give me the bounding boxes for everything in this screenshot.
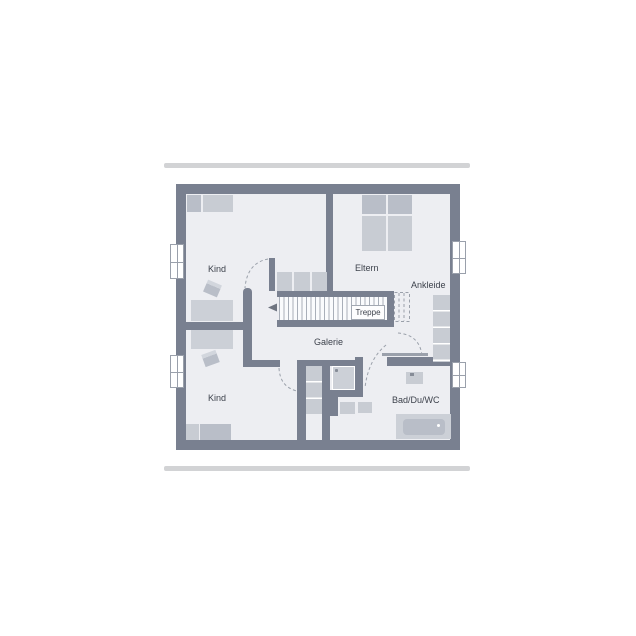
room-label-treppe: Treppe [355,308,380,318]
chair [203,280,222,298]
stair-direction-arrow-icon [268,304,277,312]
bed [388,216,412,251]
sink [406,372,423,384]
chair [201,350,220,367]
room-label-bad: Bad/Du/WC [392,395,440,405]
bed-pillow [187,195,201,212]
wall [277,320,394,327]
wardrobe [306,366,322,414]
wall [326,194,333,291]
sliding-door [382,353,428,356]
desk [191,300,233,321]
door-leaf [269,258,275,291]
stairs-label-box: Treppe [351,305,385,320]
bathtub-basin [403,419,445,435]
bed-pillow [186,424,199,440]
shelf [294,272,310,291]
bed-pillow [388,195,412,214]
wall [297,360,306,440]
top-divider-bar [164,163,470,168]
room-label-eltern: Eltern [355,263,379,273]
room-label-kind-top: Kind [208,264,226,274]
bed [362,216,386,251]
shower [332,366,355,390]
window [170,244,184,279]
stairs-dashed-extension [395,293,410,322]
desk [191,330,233,349]
floor-plan: Treppe Kind Eltern Ankleide Galerie Kind… [176,184,460,450]
room-label-galerie: Galerie [314,337,343,347]
shelf [312,272,327,291]
washer [340,402,355,414]
wall [387,291,394,327]
wall [330,390,363,397]
wall [186,322,243,330]
shelf [277,272,292,291]
window [452,241,466,274]
door-swing-arc [279,368,297,391]
wall [243,288,252,362]
bed [200,424,231,440]
door-swing-arc [245,259,268,288]
door-swing-arc [365,345,386,388]
wall [322,366,330,440]
room-label-kind-bottom: Kind [208,393,226,403]
toilet [358,402,372,413]
bottom-divider-bar [164,466,470,471]
window [170,355,184,388]
bed-pillow [362,195,386,214]
bathtub [396,414,451,439]
bed [203,195,233,212]
floorplan-page: Treppe Kind Eltern Ankleide Galerie Kind… [0,0,636,636]
wall [330,397,338,416]
window [452,362,466,388]
room-label-ankleide: Ankleide [411,280,446,290]
wardrobe [433,295,450,362]
wall [243,360,280,367]
